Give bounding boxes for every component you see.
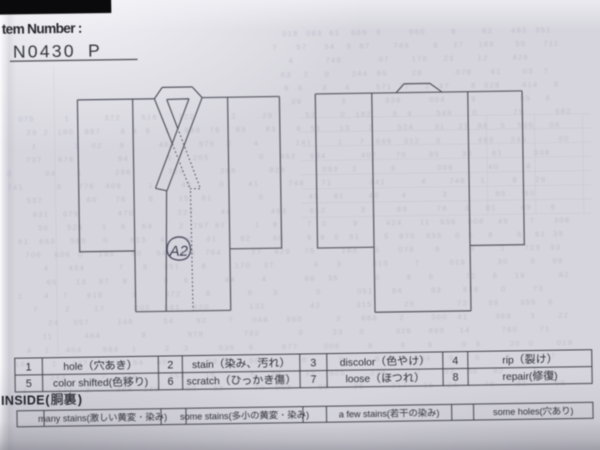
svg-text:): ): [164, 412, 167, 422]
svg-text:6: 6: [249, 342, 255, 351]
svg-text:1: 1: [102, 222, 108, 231]
svg-text:749: 749: [393, 41, 410, 50]
svg-text:some holes(: some holes(: [493, 406, 543, 417]
svg-text:4: 4: [345, 83, 351, 92]
svg-text:351: 351: [535, 25, 552, 34]
svg-text:936: 936: [440, 217, 457, 226]
svg-text:831: 831: [33, 210, 50, 219]
svg-text:9: 9: [476, 339, 482, 348]
svg-text:603: 603: [275, 383, 292, 392]
svg-text:45: 45: [498, 216, 509, 225]
svg-text:64: 64: [142, 222, 153, 231]
svg-text:61: 61: [18, 237, 29, 246]
svg-text:536: 536: [219, 343, 236, 352]
svg-text:3: 3: [184, 343, 190, 352]
svg-text:414: 414: [522, 80, 539, 89]
svg-text:684: 684: [103, 344, 120, 353]
svg-text:180: 180: [58, 128, 75, 137]
svg-text:51: 51: [349, 232, 360, 241]
svg-text:6: 6: [548, 297, 554, 306]
svg-text:8: 8: [452, 372, 458, 384]
svg-text:75: 75: [304, 246, 315, 255]
svg-text:7: 7: [551, 352, 557, 361]
svg-text:6: 6: [307, 233, 313, 242]
svg-text:4: 4: [254, 138, 260, 147]
svg-text:4: 4: [44, 291, 50, 300]
svg-text:780: 780: [502, 325, 519, 334]
svg-text:84: 84: [118, 154, 129, 163]
svg-text:797: 797: [193, 221, 210, 230]
svg-text:148: 148: [117, 317, 134, 326]
svg-text:83: 83: [266, 125, 277, 134]
svg-text:27: 27: [453, 40, 464, 49]
svg-text:40: 40: [488, 162, 499, 171]
svg-text:723: 723: [524, 243, 541, 252]
svg-text:37: 37: [264, 261, 275, 270]
svg-text:57: 57: [296, 42, 307, 51]
svg-text:424: 424: [386, 218, 403, 227]
svg-text:9: 9: [353, 219, 359, 228]
svg-text:85: 85: [429, 149, 440, 158]
svg-text:30: 30: [498, 257, 509, 266]
svg-text:87: 87: [359, 42, 370, 51]
svg-text:887: 887: [85, 127, 102, 136]
svg-text:55: 55: [515, 39, 526, 48]
svg-text:482: 482: [511, 26, 528, 35]
svg-text:0: 0: [325, 69, 331, 78]
svg-text:8: 8: [121, 127, 127, 136]
svg-text:A2: A2: [169, 243, 189, 260]
svg-text:0: 0: [475, 353, 481, 362]
svg-text:85: 85: [377, 68, 388, 77]
svg-text:3: 3: [530, 311, 536, 320]
svg-text:2: 2: [425, 81, 431, 90]
svg-text:7: 7: [311, 374, 317, 386]
svg-text:369: 369: [495, 311, 512, 320]
svg-text:repair(: repair(: [503, 372, 533, 383]
svg-text:4: 4: [44, 264, 50, 273]
svg-text:1: 1: [480, 176, 486, 185]
svg-text:1: 1: [338, 137, 344, 146]
svg-text:6: 6: [121, 222, 127, 231]
svg-text:93: 93: [431, 285, 442, 294]
svg-text:8: 8: [202, 262, 208, 271]
svg-text:813: 813: [130, 235, 147, 244]
svg-text:8: 8: [142, 330, 148, 339]
svg-text:44: 44: [181, 180, 192, 189]
svg-text:9: 9: [320, 233, 326, 242]
svg-text:008: 008: [437, 163, 454, 172]
svg-text:006: 006: [324, 341, 341, 350]
svg-text:92: 92: [196, 316, 207, 325]
svg-text:3: 3: [322, 83, 328, 92]
svg-text:706: 706: [25, 250, 42, 259]
svg-text:1: 1: [132, 344, 138, 353]
svg-text:83: 83: [236, 125, 247, 134]
svg-text:16: 16: [423, 381, 434, 390]
svg-text:62: 62: [482, 26, 493, 35]
svg-text:61: 61: [492, 148, 503, 157]
svg-text:83: 83: [397, 204, 408, 213]
svg-text:): ): [554, 371, 558, 382]
svg-text:7: 7: [307, 219, 313, 228]
svg-text:8: 8: [375, 354, 381, 363]
svg-text:463: 463: [271, 206, 288, 215]
svg-text:15: 15: [179, 194, 190, 203]
svg-text:87: 87: [99, 277, 110, 286]
svg-text:93: 93: [550, 243, 561, 252]
svg-text:(: (: [45, 393, 50, 407]
svg-text:004: 004: [429, 95, 446, 104]
svg-text:0: 0: [455, 231, 461, 240]
svg-text:338: 338: [534, 148, 551, 157]
svg-text:979: 979: [188, 330, 205, 339]
svg-text:2: 2: [44, 128, 50, 137]
svg-text:72: 72: [457, 299, 468, 308]
svg-text:61: 61: [535, 229, 546, 238]
svg-text:6: 6: [149, 194, 155, 203]
svg-text:25: 25: [404, 299, 415, 308]
svg-text:464: 464: [85, 331, 102, 340]
svg-text:91: 91: [334, 192, 345, 201]
svg-text:70: 70: [254, 383, 265, 392]
svg-text:3: 3: [436, 136, 442, 145]
svg-text:5: 5: [384, 232, 390, 241]
svg-text:6: 6: [168, 376, 174, 388]
svg-text:372: 372: [165, 289, 182, 298]
svg-text:41: 41: [457, 312, 468, 321]
svg-text:22: 22: [558, 311, 569, 320]
svg-text:141: 141: [296, 138, 313, 147]
svg-text:54: 54: [324, 42, 335, 51]
svg-text:87: 87: [215, 220, 226, 229]
svg-text:960: 960: [409, 27, 426, 36]
svg-text:3: 3: [341, 96, 347, 105]
svg-text:653: 653: [39, 237, 56, 246]
svg-text:619: 619: [87, 290, 104, 299]
svg-text:76: 76: [116, 195, 127, 204]
svg-text:000: 000: [431, 312, 448, 321]
svg-text:13: 13: [76, 277, 87, 286]
svg-text:09: 09: [552, 256, 563, 265]
svg-text:6: 6: [184, 275, 190, 284]
svg-text:8: 8: [451, 27, 457, 36]
svg-text:189: 189: [478, 40, 495, 49]
svg-text:50: 50: [38, 223, 49, 232]
svg-text:1: 1: [64, 114, 70, 123]
svg-text:0: 0: [530, 257, 536, 266]
svg-text:537: 537: [27, 196, 44, 205]
svg-text:39: 39: [488, 298, 499, 307]
svg-text:869: 869: [429, 326, 446, 335]
svg-text:45: 45: [309, 192, 320, 201]
svg-text:244: 244: [352, 69, 369, 78]
svg-text:8: 8: [471, 81, 477, 90]
svg-text:44: 44: [221, 207, 232, 216]
svg-text:950: 950: [286, 315, 303, 324]
svg-text:71: 71: [321, 178, 332, 187]
svg-text:some stains(: some stains(: [180, 411, 232, 422]
svg-text:78: 78: [210, 125, 221, 134]
svg-text:404: 404: [66, 345, 83, 354]
svg-text:4: 4: [262, 274, 268, 283]
svg-text:008: 008: [468, 217, 485, 226]
svg-text:2: 2: [231, 112, 237, 121]
svg-text:): ): [145, 377, 149, 388]
svg-text:2: 2: [179, 221, 185, 230]
svg-text:355: 355: [520, 297, 537, 306]
svg-text:07: 07: [378, 55, 389, 64]
svg-text:6: 6: [407, 272, 413, 281]
svg-text:612: 612: [310, 205, 327, 214]
svg-text:746: 746: [449, 176, 466, 185]
svg-text:00: 00: [559, 134, 570, 143]
svg-text:132: 132: [249, 302, 266, 311]
svg-text:245: 245: [511, 134, 528, 143]
svg-text:7: 7: [63, 291, 69, 300]
svg-text:8: 8: [433, 41, 439, 50]
svg-text:227: 227: [178, 207, 195, 216]
svg-text:04: 04: [45, 169, 56, 178]
svg-text:loose: loose: [345, 374, 370, 385]
svg-text:483: 483: [478, 135, 495, 144]
svg-text:3: 3: [56, 182, 62, 191]
svg-text:76: 76: [437, 204, 448, 213]
svg-text:0: 0: [316, 287, 322, 296]
svg-text:409: 409: [105, 181, 122, 190]
svg-text:6: 6: [551, 202, 557, 211]
svg-text:7: 7: [415, 258, 421, 267]
svg-text:0: 0: [375, 273, 381, 282]
svg-text:3: 3: [374, 245, 380, 254]
svg-text:4: 4: [27, 346, 33, 355]
svg-text:315: 315: [373, 259, 390, 268]
svg-text:078: 078: [398, 245, 415, 254]
svg-text:70: 70: [484, 380, 495, 389]
svg-text:36: 36: [328, 273, 339, 282]
svg-text:1: 1: [52, 359, 58, 368]
svg-text:3: 3: [310, 357, 316, 369]
svg-text:61: 61: [202, 193, 213, 202]
svg-text:70: 70: [396, 150, 407, 159]
svg-text:02: 02: [92, 141, 103, 150]
svg-text:72: 72: [466, 271, 477, 280]
svg-text:17: 17: [94, 304, 105, 313]
svg-text:571: 571: [376, 82, 393, 91]
svg-text:4: 4: [452, 355, 458, 367]
svg-text:): ): [78, 393, 82, 407]
svg-text:35: 35: [553, 229, 564, 238]
svg-text:63: 63: [281, 70, 292, 79]
svg-text:0: 0: [529, 338, 535, 347]
svg-text:528: 528: [484, 80, 501, 89]
svg-text:7: 7: [33, 305, 39, 314]
svg-text:1: 1: [18, 292, 24, 301]
svg-text:1: 1: [32, 142, 38, 151]
svg-text:9: 9: [428, 340, 434, 349]
svg-text:5: 5: [250, 370, 256, 379]
svg-text:609: 609: [351, 28, 368, 37]
svg-text:905: 905: [329, 368, 346, 377]
svg-text:9: 9: [284, 84, 290, 93]
svg-text:454: 454: [69, 263, 86, 272]
svg-text:1: 1: [255, 220, 261, 229]
svg-text:3: 3: [442, 190, 448, 199]
svg-text:7: 7: [544, 66, 550, 75]
svg-text:2: 2: [165, 344, 171, 353]
svg-text:47: 47: [439, 81, 450, 90]
svg-text:7: 7: [119, 263, 125, 272]
svg-text:hole: hole: [63, 362, 83, 373]
svg-text:): ): [436, 408, 439, 418]
svg-text:462: 462: [280, 151, 297, 160]
svg-text:2: 2: [167, 359, 173, 371]
svg-text:INSIDE: INSIDE: [1, 393, 45, 408]
svg-text:P: P: [88, 41, 100, 61]
svg-text:2: 2: [352, 164, 358, 173]
svg-text:): ): [306, 410, 309, 420]
svg-text:8: 8: [512, 175, 518, 184]
svg-text:051: 051: [357, 286, 374, 295]
svg-text:312: 312: [404, 136, 421, 145]
svg-text:5: 5: [554, 80, 560, 89]
svg-text:4: 4: [421, 177, 427, 186]
svg-text:8: 8: [273, 220, 279, 229]
svg-text:1: 1: [148, 181, 154, 190]
svg-text:stain: stain: [192, 360, 214, 371]
svg-text:4: 4: [314, 260, 320, 269]
svg-text:12: 12: [477, 53, 488, 62]
svg-text:61: 61: [329, 28, 340, 37]
svg-text:3: 3: [132, 290, 138, 299]
svg-text:35: 35: [462, 149, 473, 158]
svg-text:discolor: discolor: [340, 357, 376, 369]
svg-text:23: 23: [333, 328, 344, 337]
svg-text:7: 7: [530, 216, 536, 225]
svg-text:0: 0: [259, 152, 265, 161]
svg-text:2: 2: [227, 139, 233, 148]
svg-text:170: 170: [411, 54, 428, 63]
svg-text:3: 3: [337, 260, 343, 269]
svg-text:019: 019: [450, 258, 467, 267]
svg-text:9: 9: [368, 341, 374, 350]
svg-text:8: 8: [146, 126, 152, 135]
svg-text:82: 82: [559, 270, 570, 279]
svg-text:898: 898: [185, 126, 202, 135]
svg-text:326: 326: [396, 327, 413, 336]
svg-text:11: 11: [43, 332, 54, 341]
svg-text:078: 078: [456, 67, 473, 76]
svg-text:0: 0: [103, 236, 109, 245]
svg-text:678: 678: [58, 155, 75, 164]
svg-text:28: 28: [412, 68, 423, 77]
svg-text:65: 65: [47, 277, 58, 286]
svg-text:684: 684: [310, 151, 327, 160]
svg-text:85: 85: [495, 189, 506, 198]
svg-text:8: 8: [526, 162, 532, 171]
svg-text:77: 77: [399, 82, 410, 91]
svg-text:170: 170: [235, 261, 252, 270]
svg-text:0: 0: [299, 328, 305, 337]
svg-text:03: 03: [523, 66, 534, 75]
svg-text:464: 464: [116, 385, 133, 394]
svg-text:516: 516: [141, 113, 158, 122]
svg-text:1: 1: [45, 346, 51, 355]
svg-text:6: 6: [435, 245, 441, 254]
svg-text:6: 6: [429, 272, 435, 281]
svg-text:73: 73: [533, 284, 544, 293]
svg-text:39: 39: [291, 97, 302, 106]
svg-text:019: 019: [557, 338, 574, 347]
svg-text:0: 0: [360, 327, 366, 336]
svg-text:828: 828: [269, 165, 286, 174]
svg-text:470: 470: [118, 208, 135, 217]
svg-text:6: 6: [248, 288, 254, 297]
svg-text:14: 14: [460, 326, 471, 335]
svg-text:407: 407: [361, 150, 378, 159]
svg-text:6: 6: [206, 289, 212, 298]
svg-text:3: 3: [545, 93, 551, 102]
svg-text:724: 724: [168, 167, 185, 176]
svg-text:3: 3: [346, 42, 352, 51]
svg-text:6: 6: [391, 164, 397, 173]
svg-text:372: 372: [104, 113, 121, 122]
svg-text:4: 4: [288, 56, 294, 65]
svg-text:rip: rip: [502, 355, 514, 366]
svg-text:0: 0: [259, 193, 265, 202]
svg-text:8: 8: [493, 271, 499, 280]
svg-text:2: 2: [65, 304, 71, 313]
svg-text:4: 4: [402, 191, 408, 200]
svg-text:3: 3: [273, 288, 279, 297]
svg-text:296: 296: [115, 167, 132, 176]
svg-text:8: 8: [488, 230, 494, 239]
svg-text:color shifted(: color shifted(: [53, 378, 113, 390]
svg-text:194: 194: [415, 353, 432, 362]
svg-text:528: 528: [67, 223, 84, 232]
svg-text:746: 746: [325, 56, 342, 65]
svg-text:565: 565: [70, 236, 87, 245]
svg-text:4: 4: [160, 235, 166, 244]
svg-text:5: 5: [26, 378, 32, 390]
svg-text:3: 3: [143, 262, 149, 271]
svg-text:29: 29: [262, 111, 273, 120]
svg-text:764: 764: [205, 248, 222, 257]
svg-text:71: 71: [540, 324, 551, 333]
svg-text:7: 7: [272, 43, 278, 52]
svg-text:426: 426: [512, 53, 529, 62]
svg-text:2: 2: [336, 314, 342, 323]
svg-text:679: 679: [63, 209, 80, 218]
svg-text:41: 41: [248, 179, 259, 188]
svg-text:0: 0: [322, 219, 328, 228]
svg-text:083: 083: [306, 29, 323, 38]
svg-text:870: 870: [399, 231, 416, 240]
svg-text:29: 29: [535, 175, 546, 184]
svg-text:2: 2: [399, 313, 405, 322]
svg-text:306: 306: [554, 215, 571, 224]
svg-text:40: 40: [369, 191, 380, 200]
svg-text:38: 38: [467, 366, 478, 375]
svg-text:60: 60: [524, 189, 535, 198]
svg-text:732: 732: [244, 329, 261, 338]
svg-text:048: 048: [252, 315, 269, 324]
svg-text:61: 61: [491, 67, 502, 76]
svg-text:41: 41: [206, 234, 217, 243]
svg-text:018: 018: [282, 29, 299, 38]
svg-text:N0430: N0430: [13, 41, 76, 62]
svg-text:a few stains(: a few stains(: [339, 409, 390, 420]
